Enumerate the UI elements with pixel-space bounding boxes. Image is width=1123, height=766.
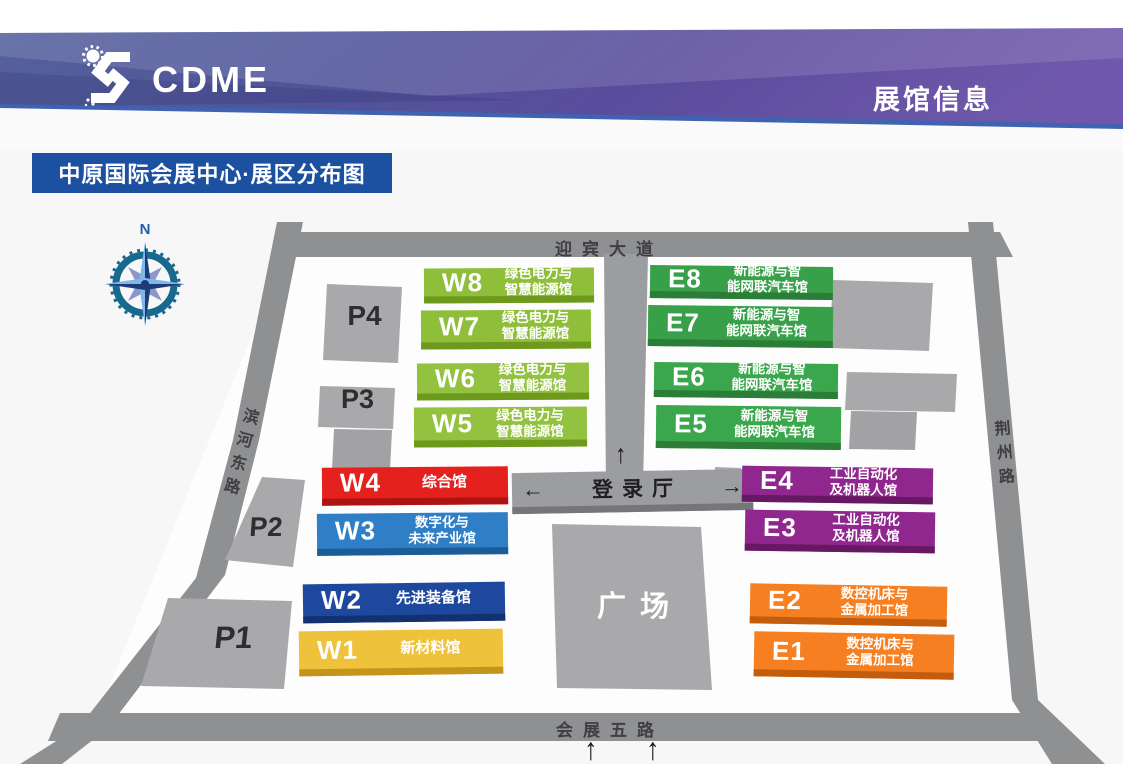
hall-name-line: 智慧能源馆 <box>491 282 586 298</box>
hall-id-label: E2 <box>768 585 802 617</box>
hall-name-line: 绿色电力与 <box>488 310 583 326</box>
hall-w2: W2先进装备馆 <box>303 582 506 624</box>
gear-s-logo-icon <box>80 44 138 110</box>
registration-hall-label: 登录厅 <box>583 472 683 504</box>
parking-label-p1: P1 <box>174 620 293 656</box>
hall-w7: W7绿色电力与智慧能源馆 <box>421 310 591 350</box>
logo-text: CDME <box>152 59 270 101</box>
hall-name-line: 工业自动化 <box>805 512 927 530</box>
hall-e6: E6新能源与智能网联汽车馆 <box>654 362 838 399</box>
hall-name-line: 新材料馆 <box>366 639 495 658</box>
hall-w8: W8绿色电力与智慧能源馆 <box>424 268 594 304</box>
right-arrow-icon: → <box>721 473 743 499</box>
hall-name-line: 绿色电力与 <box>491 266 586 282</box>
entrance-arrow-icon: ↑ <box>584 734 598 765</box>
road-huizhan-5th <box>48 713 1048 741</box>
plaza-label: 广场 <box>558 583 708 625</box>
hall-name-label: 新材料馆 <box>366 639 495 658</box>
hall-name-line: 综合馆 <box>389 473 500 492</box>
hall-id-label: E8 <box>668 263 702 294</box>
hall-name-line: 金属加工馆 <box>814 651 946 669</box>
left-arrow-icon: ← <box>522 477 544 503</box>
hall-name-line: 新能源与智 <box>716 408 833 425</box>
building-east-mid <box>845 372 957 412</box>
hall-id-label: E1 <box>772 635 806 667</box>
entrance-arrow-icon: ↑ <box>646 734 660 765</box>
hall-name-line: 智慧能源馆 <box>484 378 581 394</box>
hall-name-label: 工业自动化及机器人馆 <box>802 465 926 499</box>
hall-id-label: W1 <box>317 634 358 666</box>
hall-name-label: 工业自动化及机器人馆 <box>805 512 928 546</box>
hall-name-label: 数控机床与金属加工馆 <box>810 585 940 619</box>
hall-name-line: 新能源与智 <box>710 263 825 280</box>
page-title: 展馆信息 <box>873 78 993 117</box>
hall-name-label: 综合馆 <box>389 473 500 492</box>
hall-id-label: W5 <box>432 408 473 439</box>
map-title-badge: 中原国际会展中心·展区分布图 <box>32 153 392 193</box>
hall-e2: E2数控机床与金属加工馆 <box>750 583 948 626</box>
compass-icon: N <box>93 218 197 336</box>
hall-w4: W4综合馆 <box>322 466 508 506</box>
hall-name-label: 新能源与智能网联汽车馆 <box>710 263 826 296</box>
hall-name-label: 绿色电力与智慧能源馆 <box>484 362 581 394</box>
parking-label-p3: P3 <box>320 384 395 415</box>
hall-id-label: E5 <box>674 408 708 439</box>
cdme-logo: CDME <box>80 44 270 110</box>
hall-name-line: 能网联汽车馆 <box>710 279 825 296</box>
hall-e4: E4工业自动化及机器人馆 <box>742 466 933 505</box>
hall-name-label: 新能源与智能网联汽车馆 <box>714 361 831 394</box>
hall-id-label: W3 <box>335 515 376 546</box>
hall-id-label: W8 <box>442 267 483 298</box>
hall-e3: E3工业自动化及机器人馆 <box>745 510 936 554</box>
parking-label-p2: P2 <box>230 512 302 543</box>
parking-p3-annex <box>332 429 392 471</box>
walkway-up-arrow-icon: ↑ <box>615 441 627 467</box>
hall-name-line: 未来产业馆 <box>384 530 500 547</box>
hall-name-line: 智慧能源馆 <box>488 326 583 342</box>
hall-e5: E5新能源与智能网联汽车馆 <box>656 405 841 450</box>
hall-name-label: 数字化与未来产业馆 <box>384 514 500 547</box>
hall-name-line: 金属加工馆 <box>810 601 939 619</box>
hall-name-label: 数控机床与金属加工馆 <box>814 635 947 669</box>
hall-name-line: 能网联汽车馆 <box>714 377 830 394</box>
hall-w6: W6绿色电力与智慧能源馆 <box>417 363 589 401</box>
hall-name-line: 新能源与智 <box>708 307 825 324</box>
hall-name-label: 绿色电力与智慧能源馆 <box>488 310 583 342</box>
hall-name-line: 新能源与智 <box>714 361 830 378</box>
hall-id-label: E6 <box>672 361 706 392</box>
hall-w3: W3数字化与未来产业馆 <box>317 512 508 556</box>
hall-w5: W5绿色电力与智慧能源馆 <box>414 407 587 448</box>
hall-e1: E1数控机床与金属加工馆 <box>754 631 955 679</box>
hall-w1: W1新材料馆 <box>299 629 504 677</box>
hall-id-label: W2 <box>321 584 362 616</box>
hall-id-label: E4 <box>760 465 794 496</box>
hall-id-label: W4 <box>340 467 381 498</box>
parking-label-p4: P4 <box>327 300 402 332</box>
hall-name-line: 绿色电力与 <box>481 407 579 423</box>
hall-id-label: E3 <box>763 511 797 542</box>
hall-name-label: 绿色电力与智慧能源馆 <box>481 407 579 439</box>
hall-id-label: W7 <box>439 311 480 342</box>
hall-name-line: 能网联汽车馆 <box>716 424 833 441</box>
compass-north-label: N <box>140 221 151 238</box>
hall-id-label: E7 <box>666 307 700 338</box>
registration-hall-bar: ← 登录厅 → <box>512 469 754 514</box>
hall-name-label: 新能源与智能网联汽车馆 <box>716 408 834 441</box>
hall-name-label: 新能源与智能网联汽车馆 <box>708 307 826 340</box>
hall-e8: E8新能源与智能网联汽车馆 <box>650 265 833 300</box>
building-northeast-large <box>829 280 933 351</box>
hall-name-line: 数字化与 <box>384 514 500 531</box>
hall-e7: E7新能源与智能网联汽车馆 <box>648 305 833 348</box>
hall-id-label: W6 <box>435 363 476 394</box>
hall-name-label: 先进装备馆 <box>370 589 497 608</box>
hall-name-label: 绿色电力与智慧能源馆 <box>491 266 586 298</box>
building-east-small <box>849 411 917 450</box>
hall-name-line: 工业自动化 <box>802 465 925 483</box>
road-label-yingbin-avenue: 迎宾大道 <box>555 235 663 260</box>
hall-name-line: 先进装备馆 <box>370 589 497 608</box>
hall-name-line: 及机器人馆 <box>805 528 927 546</box>
hall-name-line: 智慧能源馆 <box>481 423 579 439</box>
exhibition-info-page: { "header": { "logo_text": "CDME", "page… <box>0 0 1123 764</box>
hall-name-line: 能网联汽车馆 <box>708 323 825 340</box>
hall-name-line: 及机器人馆 <box>802 481 925 499</box>
hall-name-line: 绿色电力与 <box>484 362 581 378</box>
